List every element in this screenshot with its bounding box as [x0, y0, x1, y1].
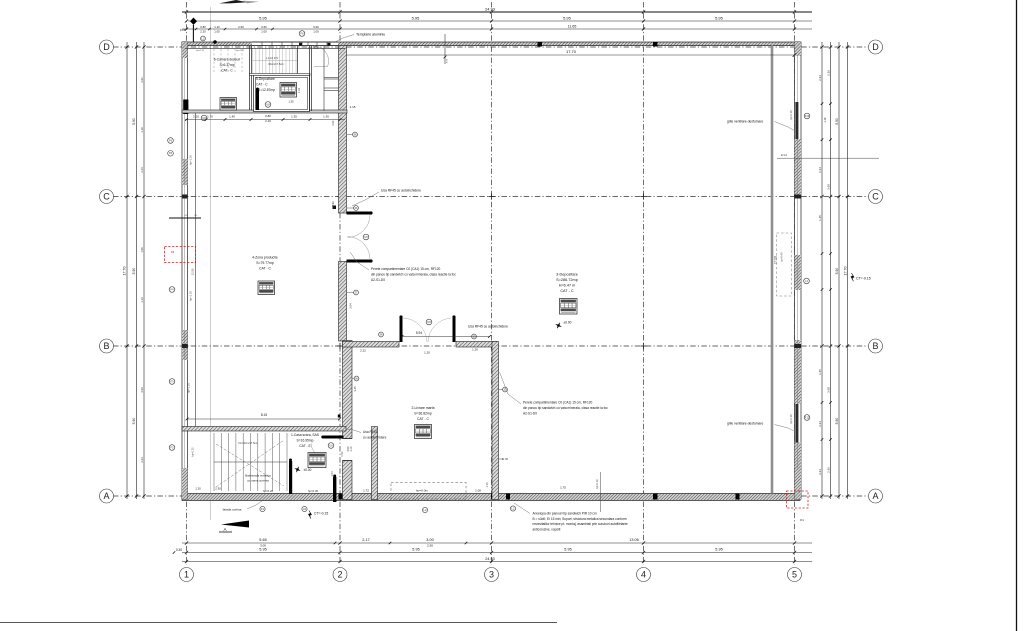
- svg-text:U5: U5: [364, 235, 368, 239]
- svg-text:5.95: 5.95: [412, 16, 421, 21]
- svg-text:S=79.77mp: S=79.77mp: [256, 261, 274, 265]
- svg-text:0.60: 0.60: [313, 25, 319, 29]
- svg-text:Usa RF45: Usa RF45: [363, 430, 378, 434]
- svg-text:5.90: 5.90: [132, 118, 136, 125]
- svg-text:2.04: 2.04: [349, 303, 353, 309]
- svg-text:grile ventilare-desfumare: grile ventilare-desfumare: [727, 422, 763, 426]
- svg-text:din panou tip sandwich cu vata: din panou tip sandwich cu vata minerala,…: [523, 406, 608, 410]
- svg-text:B: B: [872, 341, 878, 351]
- svg-text:0.80: 0.80: [265, 114, 271, 118]
- svg-text:3.00: 3.00: [260, 544, 266, 548]
- svg-text:1.20: 1.20: [195, 487, 201, 491]
- svg-text:hp=1.20: hp=1.20: [187, 383, 191, 393]
- svg-text:3.45: 3.45: [353, 386, 357, 392]
- svg-text:1.00: 1.00: [214, 29, 220, 33]
- svg-text:2.10: 2.10: [193, 115, 199, 119]
- svg-text:1.06: 1.06: [140, 247, 144, 253]
- svg-text:B: B: [103, 341, 109, 351]
- svg-text:U1: U1: [303, 507, 307, 511]
- svg-text:Perete compartimentare C0 (CA1: Perete compartimentare C0 (CA1) 15 cm, R…: [371, 267, 440, 271]
- svg-text:1.45: 1.45: [818, 369, 822, 375]
- svg-text:cu autoinchidere: cu autoinchidere: [363, 436, 387, 440]
- svg-text:1.00: 1.00: [261, 29, 267, 33]
- svg-text:D: D: [872, 42, 879, 52]
- svg-text:5.95: 5.95: [715, 16, 724, 21]
- svg-text:A2-S1-D0: A2-S1-D0: [523, 412, 537, 416]
- svg-text:1.00: 1.00: [313, 29, 319, 33]
- svg-text:Usa RF45 cu autoinchidere: Usa RF45 cu autoinchidere: [468, 325, 508, 329]
- svg-text:2.22: 2.22: [360, 349, 366, 353]
- svg-text:hp=0.39: hp=0.39: [789, 414, 793, 424]
- svg-text:3.60: 3.60: [827, 184, 831, 190]
- svg-text:2.36: 2.36: [827, 467, 831, 473]
- svg-text:S=6.37mp: S=6.37mp: [219, 63, 234, 67]
- svg-text:D: D: [103, 42, 110, 52]
- svg-text:2.10: 2.10: [265, 119, 271, 123]
- svg-text:5: 5: [792, 570, 797, 580]
- svg-text:hp=0.20: hp=0.20: [192, 447, 195, 457]
- svg-text:5.95: 5.95: [259, 16, 268, 21]
- svg-text:CAT - C: CAT - C: [560, 289, 574, 293]
- svg-text:1.45: 1.45: [229, 115, 235, 119]
- svg-text:±0.00: ±0.00: [564, 321, 572, 325]
- svg-text:2.50: 2.50: [238, 25, 244, 29]
- svg-text:2: 2: [337, 570, 342, 580]
- svg-text:D1: D1: [800, 518, 804, 522]
- svg-text:din panou tip sandwich cu vata: din panou tip sandwich cu vata minerala,…: [371, 273, 456, 277]
- svg-text:Templarie aluminiu: Templarie aluminiu: [356, 33, 385, 37]
- svg-text:Usa RF45 cu autoinchidere: Usa RF45 cu autoinchidere: [381, 189, 421, 193]
- svg-text:A: A: [872, 491, 878, 501]
- svg-text:1.10: 1.10: [140, 297, 144, 303]
- svg-text:C: C: [872, 192, 879, 202]
- svg-text:tp=0.40: tp=0.40: [780, 252, 784, 262]
- svg-text:1.20: 1.20: [424, 351, 430, 355]
- svg-text:CAT - C: CAT - C: [417, 417, 429, 421]
- svg-text:1.30: 1.30: [323, 115, 329, 119]
- svg-text:cu mana curenta: cu mana curenta: [247, 479, 269, 483]
- svg-text:S=36.82mp: S=36.82mp: [414, 412, 432, 416]
- svg-text:13.06: 13.06: [629, 538, 639, 542]
- svg-text:S=12.87mp: S=12.87mp: [258, 88, 275, 92]
- svg-text:1.18: 1.18: [824, 117, 827, 122]
- svg-text:±0.00: ±0.00: [304, 468, 312, 472]
- svg-text:5.90: 5.90: [132, 268, 136, 275]
- svg-text:0.90: 0.90: [331, 201, 335, 207]
- svg-text:1.35: 1.35: [288, 100, 294, 104]
- svg-text:C: C: [103, 192, 110, 202]
- svg-text:11.65: 11.65: [568, 24, 577, 28]
- svg-text:hp=0.00: hp=0.00: [308, 489, 319, 493]
- svg-text:S=286.72mp: S=286.72mp: [556, 278, 578, 282]
- svg-text:17.08: 17.08: [774, 256, 778, 264]
- svg-text:1: 1: [184, 570, 189, 580]
- svg-text:CT=-0.15: CT=-0.15: [314, 512, 328, 516]
- svg-text:2.30: 2.30: [215, 487, 221, 491]
- svg-text:1.15: 1.15: [485, 482, 489, 488]
- svg-text:1.15: 1.15: [350, 105, 356, 109]
- svg-text:17.70: 17.70: [566, 49, 577, 54]
- svg-text:1.72: 1.72: [363, 489, 369, 493]
- svg-text:hp=+1.20: hp=+1.20: [308, 46, 320, 50]
- svg-text:CT=-0.15: CT=-0.15: [856, 277, 871, 281]
- svg-text:A2-S1-D0: A2-S1-D0: [371, 278, 385, 282]
- svg-text:5.95: 5.95: [259, 548, 266, 552]
- svg-text:necesitatilor tehnice pt. mont: necesitatilor tehnice pt. montaj, asambl…: [533, 522, 629, 526]
- svg-text:hp=1.20: hp=1.20: [189, 291, 193, 301]
- svg-text:5.95: 5.95: [563, 16, 572, 21]
- svg-text:L:1.10 17tr: L:1.10 17tr: [266, 56, 279, 60]
- svg-text:CAT - C: CAT - C: [256, 83, 268, 87]
- svg-text:0.30: 0.30: [176, 548, 182, 552]
- svg-text:Balustrada metalica: Balustrada metalica: [245, 474, 271, 478]
- svg-text:1.54: 1.54: [330, 471, 334, 477]
- svg-text:CAT - C: CAT - C: [259, 267, 271, 271]
- svg-text:1.18: 1.18: [140, 127, 144, 133]
- svg-text:2.24: 2.24: [140, 457, 144, 463]
- svg-text:CAT - C: CAT - C: [221, 69, 233, 73]
- svg-text:S=16.95mp: S=16.95mp: [297, 439, 314, 443]
- svg-text:1.70: 1.70: [207, 115, 213, 119]
- svg-text:3: 3: [489, 570, 494, 580]
- svg-text:2.10: 2.10: [350, 446, 353, 451]
- svg-text:17.70: 17.70: [844, 267, 848, 276]
- svg-text:hp=0.39: hp=0.39: [789, 110, 793, 120]
- svg-text:24.93: 24.93: [485, 7, 496, 12]
- svg-text:1.10: 1.10: [214, 25, 220, 29]
- svg-text:5.90: 5.90: [132, 418, 136, 425]
- svg-text:3-Depozitare: 3-Depozitare: [556, 273, 578, 277]
- svg-text:1-Casa scara, SAS: 1-Casa scara, SAS: [291, 433, 320, 437]
- svg-text:2.17: 2.17: [362, 538, 369, 542]
- svg-text:12.55: 12.55: [191, 268, 195, 275]
- svg-text:5.95: 5.95: [564, 548, 571, 552]
- svg-text:hp=1.20: hp=1.20: [189, 155, 193, 165]
- svg-text:1.35: 1.35: [291, 115, 297, 119]
- svg-text:El 1d: El 1d: [781, 153, 787, 157]
- svg-text:5.65: 5.65: [259, 538, 266, 542]
- svg-text:5.95: 5.95: [412, 548, 419, 552]
- svg-text:2.24: 2.24: [818, 469, 822, 475]
- svg-text:hp=0.20: hp=0.20: [263, 489, 274, 493]
- svg-text:CAT - E: CAT - E: [299, 444, 311, 448]
- svg-text:hp=0.0m: hp=0.0m: [416, 489, 429, 493]
- svg-text:H=6.47 m: H=6.47 m: [559, 284, 576, 288]
- svg-text:CA 30cm/17.5cm: CA 30cm/17.5cm: [238, 441, 258, 445]
- svg-text:F12: F12: [805, 415, 810, 419]
- svg-text:2.24: 2.24: [818, 75, 822, 81]
- svg-text:2.36: 2.36: [827, 70, 831, 76]
- svg-text:B = s3d0; EI 15 min; Suport; s: B = s3d0; EI 15 min; Suport; structura m…: [533, 517, 628, 521]
- svg-text:5.90: 5.90: [835, 418, 839, 425]
- svg-text:2.62: 2.62: [140, 77, 144, 83]
- svg-text:A: A: [223, 527, 226, 532]
- svg-text:5-Depozitare: 5-Depozitare: [256, 77, 275, 81]
- svg-text:1.05: 1.05: [475, 489, 481, 493]
- svg-text:17.70: 17.70: [123, 267, 127, 276]
- svg-text:6-Camera deseuri: 6-Camera deseuri: [214, 58, 241, 62]
- svg-text:24.93: 24.93: [485, 557, 495, 561]
- svg-text:D6: D6: [171, 250, 175, 254]
- svg-text:A: A: [103, 491, 109, 501]
- svg-text:0.90: 0.90: [341, 451, 344, 456]
- svg-text:5.95: 5.95: [715, 548, 722, 552]
- svg-text:2.24: 2.24: [140, 167, 144, 173]
- svg-text:3.60: 3.60: [827, 387, 831, 393]
- svg-text:30cm/17.5cm: 30cm/17.5cm: [268, 62, 284, 66]
- svg-text:0.60: 0.60: [332, 120, 335, 125]
- svg-text:4: 4: [641, 570, 646, 580]
- svg-text:2.24: 2.24: [818, 421, 822, 427]
- svg-text:5.90: 5.90: [835, 118, 839, 125]
- svg-text:F12: F12: [805, 114, 810, 118]
- svg-text:hp=0.90: hp=0.90: [595, 479, 599, 489]
- svg-text:4-Zona productie: 4-Zona productie: [252, 256, 278, 260]
- svg-text:2-Livrare marfa: 2-Livrare marfa: [412, 406, 435, 410]
- svg-text:U6: U6: [329, 443, 333, 447]
- svg-text:2.20: 2.20: [200, 29, 206, 33]
- svg-text:1.75: 1.75: [560, 486, 566, 490]
- svg-text:hp=2.10: hp=2.10: [196, 50, 205, 52]
- svg-text:8.15: 8.15: [261, 413, 267, 417]
- svg-text:fatada cortina: fatada cortina: [223, 508, 242, 512]
- svg-text:hp=1.20: hp=1.20: [236, 50, 245, 52]
- svg-text:0.60: 0.60: [261, 25, 267, 29]
- svg-text:3.50: 3.50: [140, 387, 144, 393]
- svg-text:1.33: 1.33: [297, 87, 301, 93]
- svg-text:anticorozive, vopsiti: anticorozive, vopsiti: [533, 527, 561, 531]
- svg-text:Anvelopa din panouri tip sandw: Anvelopa din panouri tip sandwich PIR 10…: [533, 512, 597, 516]
- svg-text:Perete compartimentare C0 (CA1: Perete compartimentare C0 (CA1) 15 cm, R…: [523, 401, 592, 405]
- svg-text:2.24: 2.24: [818, 167, 822, 173]
- svg-text:0.15: 0.15: [180, 28, 186, 32]
- svg-text:U8: U8: [266, 102, 270, 106]
- svg-text:1.45: 1.45: [818, 215, 822, 221]
- svg-text:5.90: 5.90: [835, 268, 839, 275]
- svg-text:5.94: 5.94: [416, 331, 422, 335]
- svg-text:U8: U8: [427, 320, 431, 324]
- svg-text:2.50: 2.50: [427, 544, 433, 548]
- svg-text:1.20: 1.20: [472, 348, 478, 352]
- svg-text:0.80: 0.80: [200, 25, 206, 29]
- svg-text:grile ventilare-desfumare: grile ventilare-desfumare: [727, 120, 763, 124]
- svg-text:3.00: 3.00: [426, 538, 433, 542]
